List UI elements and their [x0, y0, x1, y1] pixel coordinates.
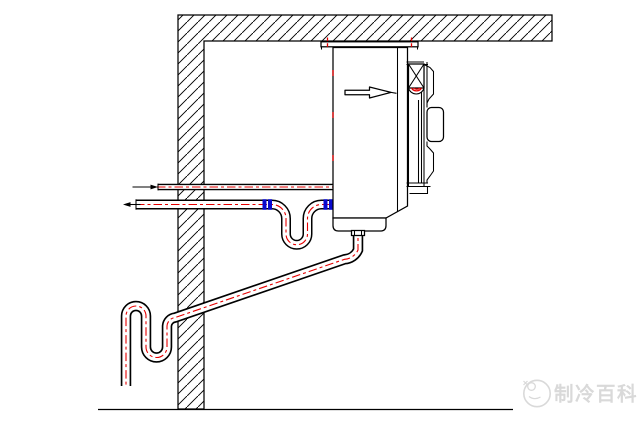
watermark-text: 制冷百科 [554, 383, 638, 406]
coupling-bar [268, 199, 272, 210]
fan-symbol-box [409, 64, 425, 88]
drain-line-centerline [126, 227, 358, 388]
drain-pan [333, 218, 386, 231]
drain-fitting [352, 231, 365, 236]
suction-line-pipe [136, 199, 333, 244]
watermark: 制冷百科 [524, 380, 639, 406]
fan-motor-housing [427, 108, 444, 142]
snowflake-badge-icon [524, 380, 551, 406]
coupling-bar [263, 199, 267, 210]
fan-bottom-bracket [407, 183, 431, 194]
liquid-flow-arrow [133, 185, 159, 190]
fan-assembly [407, 62, 444, 194]
coupling-bar [324, 199, 328, 210]
diagram-canvas: 制冷百科 [0, 0, 642, 424]
liquid-line-pipe [157, 184, 333, 191]
air-cooler-body [333, 48, 408, 219]
drain-line-pipe [126, 227, 358, 388]
installation-diagram: 制冷百科 [0, 0, 642, 424]
